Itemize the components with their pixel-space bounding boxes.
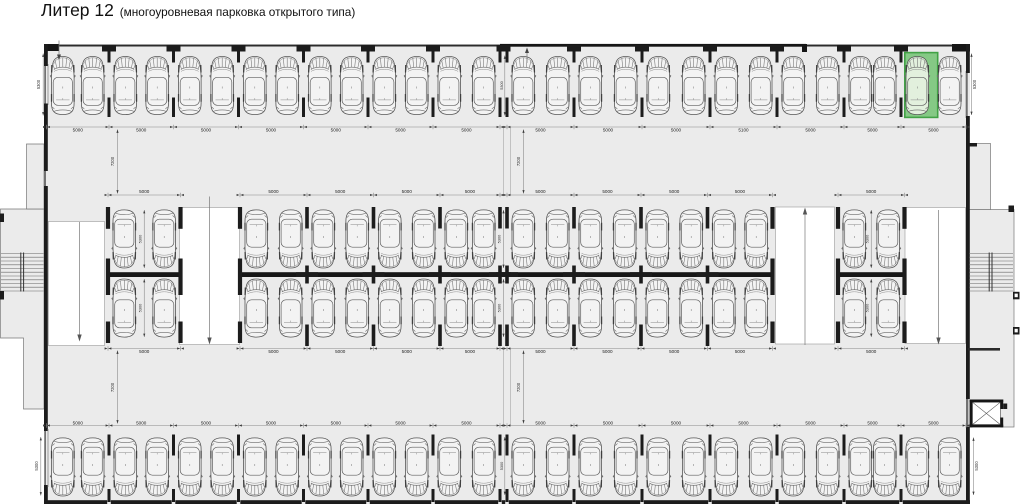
- svg-text:5000: 5000: [465, 349, 476, 354]
- svg-text:5000: 5000: [735, 349, 746, 354]
- svg-text:7200: 7200: [110, 156, 115, 166]
- svg-text:5000: 5000: [671, 127, 682, 132]
- svg-text:5000: 5000: [535, 127, 546, 132]
- svg-text:5000: 5000: [738, 420, 749, 425]
- svg-text:5300: 5300: [497, 234, 502, 243]
- svg-text:5000: 5000: [928, 127, 939, 132]
- svg-text:5000: 5000: [669, 189, 680, 194]
- svg-text:5000: 5000: [136, 127, 147, 132]
- svg-text:5000: 5000: [603, 127, 614, 132]
- svg-text:5000: 5000: [268, 189, 279, 194]
- svg-text:5000: 5000: [335, 189, 346, 194]
- svg-text:5000: 5000: [603, 420, 614, 425]
- svg-text:5300: 5300: [36, 79, 41, 89]
- svg-text:5300: 5300: [500, 81, 504, 89]
- svg-text:5000: 5000: [461, 420, 472, 425]
- svg-text:5000: 5000: [535, 349, 546, 354]
- svg-text:5300: 5300: [497, 303, 502, 312]
- svg-text:5000: 5000: [461, 127, 472, 132]
- svg-text:5000: 5000: [136, 420, 147, 425]
- svg-text:5300: 5300: [864, 303, 869, 312]
- svg-text:5000: 5000: [805, 127, 816, 132]
- svg-text:5000: 5000: [402, 189, 413, 194]
- svg-text:5000: 5000: [73, 127, 84, 132]
- svg-text:5000: 5000: [331, 420, 342, 425]
- svg-text:5000: 5000: [805, 420, 816, 425]
- svg-text:5000: 5000: [535, 189, 546, 194]
- svg-text:5000: 5000: [331, 127, 342, 132]
- svg-text:5000: 5000: [671, 420, 682, 425]
- svg-text:5000: 5000: [602, 349, 613, 354]
- svg-text:5000: 5000: [602, 189, 613, 194]
- svg-text:5000: 5000: [266, 420, 277, 425]
- svg-text:5300: 5300: [137, 234, 142, 243]
- svg-text:5000: 5000: [735, 189, 746, 194]
- svg-text:5000: 5000: [266, 127, 277, 132]
- svg-text:7200: 7200: [516, 156, 521, 166]
- svg-text:5000: 5000: [139, 349, 150, 354]
- svg-text:7200: 7200: [110, 382, 115, 392]
- svg-text:5000: 5000: [928, 420, 939, 425]
- svg-text:5100: 5100: [738, 127, 749, 132]
- svg-text:7200: 7200: [516, 382, 521, 392]
- svg-text:5000: 5000: [73, 420, 84, 425]
- svg-text:5000: 5000: [335, 349, 346, 354]
- svg-text:5300: 5300: [34, 461, 39, 471]
- svg-text:5000: 5000: [866, 189, 877, 194]
- svg-text:5000: 5000: [866, 349, 877, 354]
- svg-text:5300: 5300: [500, 462, 504, 470]
- svg-text:5000: 5000: [402, 349, 413, 354]
- svg-text:5300: 5300: [864, 234, 869, 243]
- svg-text:5300: 5300: [972, 79, 977, 89]
- svg-text:5000: 5000: [395, 420, 406, 425]
- svg-text:5000: 5000: [268, 349, 279, 354]
- svg-text:5000: 5000: [201, 127, 212, 132]
- svg-text:5000: 5000: [867, 127, 878, 132]
- svg-text:5000: 5000: [867, 420, 878, 425]
- svg-text:5000: 5000: [535, 420, 546, 425]
- svg-text:5000: 5000: [669, 349, 680, 354]
- svg-text:5300: 5300: [974, 461, 979, 471]
- svg-text:5000: 5000: [139, 189, 150, 194]
- svg-text:5000: 5000: [395, 127, 406, 132]
- svg-text:5000: 5000: [201, 420, 212, 425]
- svg-text:5300: 5300: [137, 303, 142, 312]
- svg-text:5000: 5000: [465, 189, 476, 194]
